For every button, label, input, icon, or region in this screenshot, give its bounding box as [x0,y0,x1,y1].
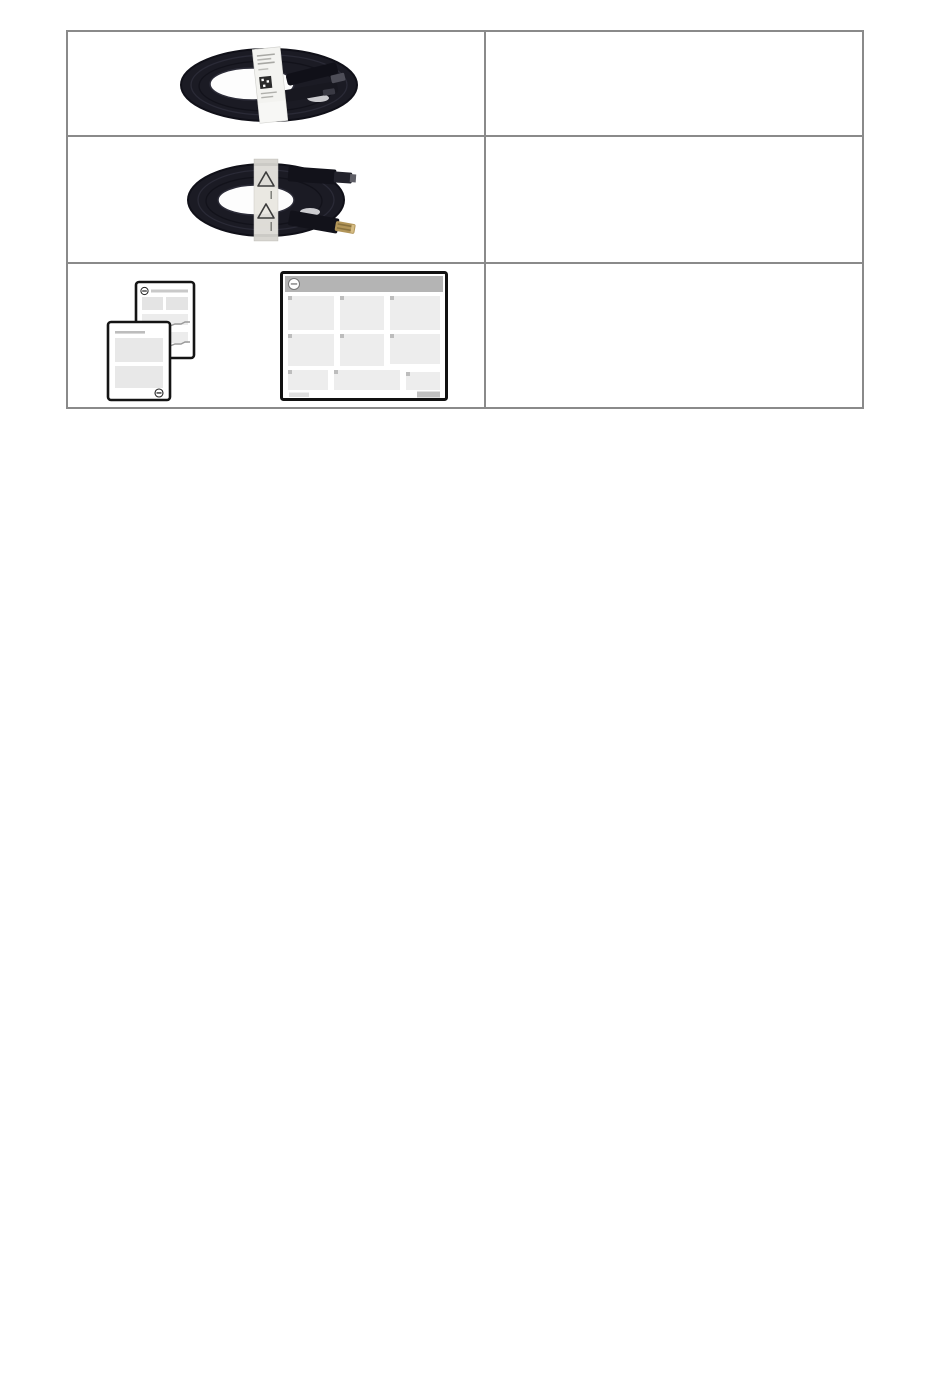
guide-footer-right-block [417,392,440,398]
hdmi-cable-photo [178,155,370,245]
recycle-wrap-label [254,159,278,241]
guide-header-bar [285,276,443,292]
table-cell-row3-description [486,264,862,407]
package-contents-table [66,30,864,409]
documents-illustration [106,280,198,402]
guide-footer-left-block [289,393,309,398]
table-cell-row2-description [486,137,862,264]
document-page [0,0,950,1374]
displayport-cable-photo [168,42,374,128]
table-cell-row1-image [68,32,486,137]
table-cell-row2-image [68,137,486,264]
front-document [108,322,170,400]
quick-setup-guide-illustration [280,271,448,401]
guide-panel-grid [288,296,440,390]
table-cell-row1-description [486,32,862,137]
table-cell-row3-image [68,264,486,407]
